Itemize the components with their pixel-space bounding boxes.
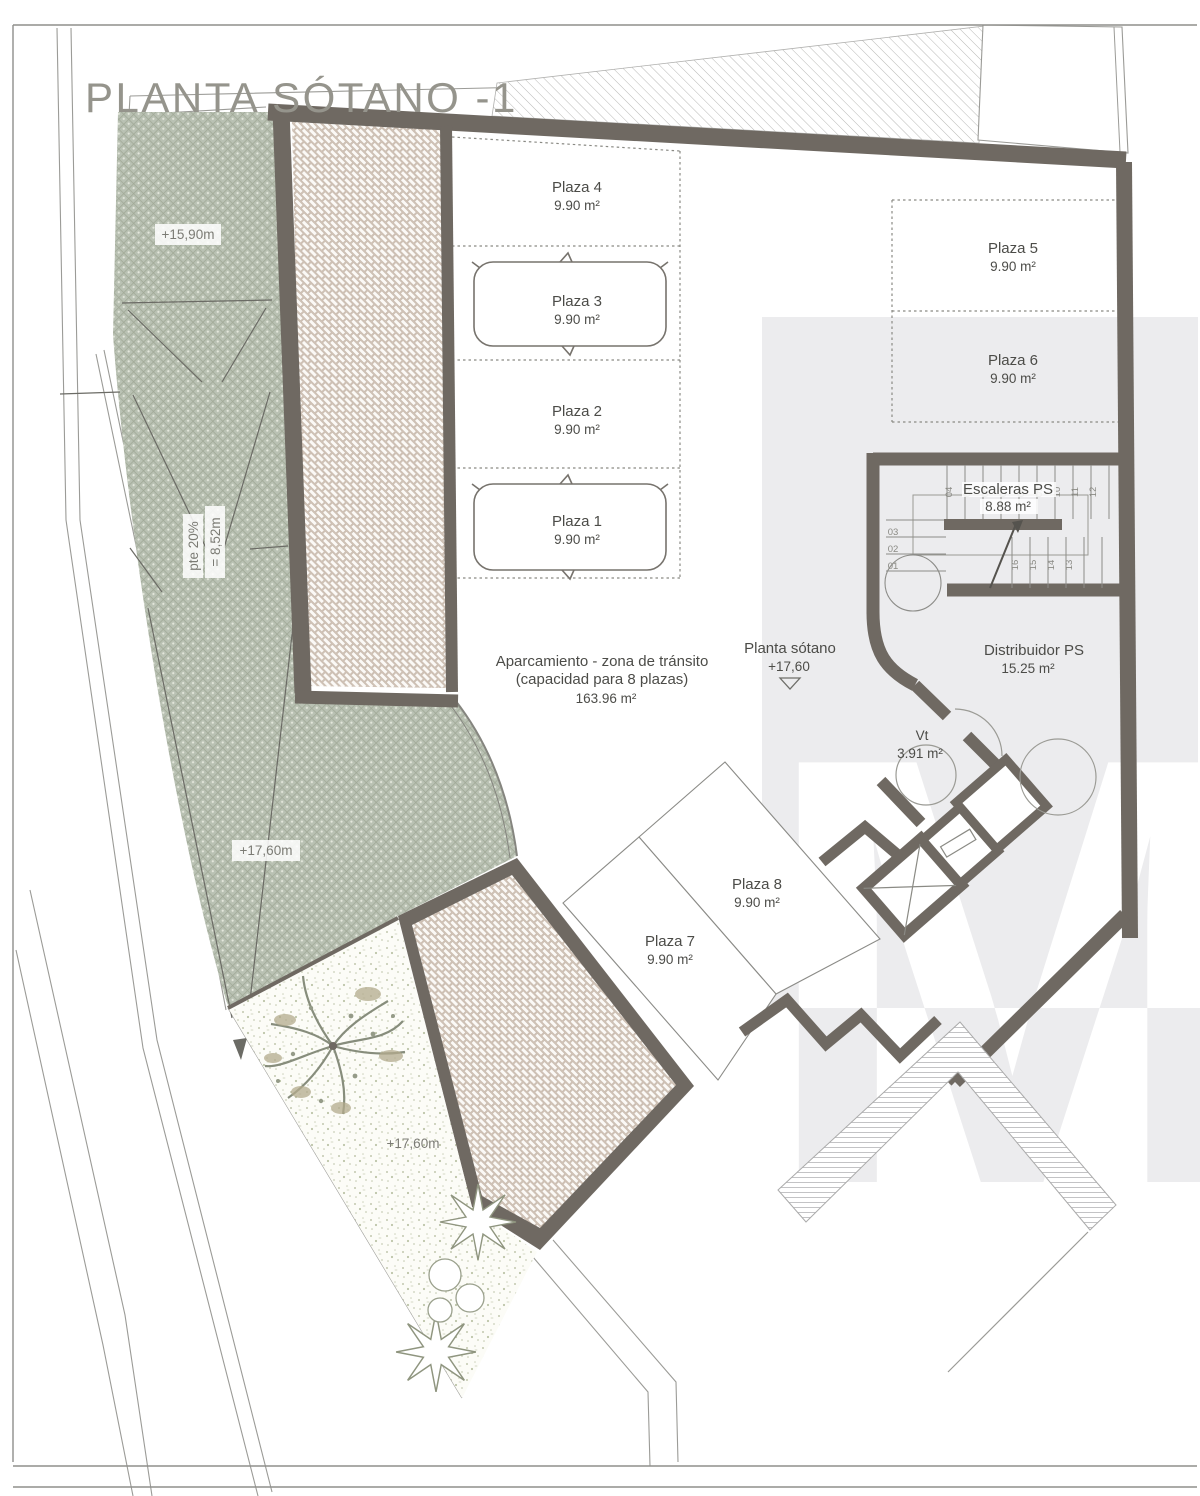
plaza1-area: 9.90 m²	[554, 532, 600, 547]
ramp-length-label: = 8,52m	[208, 517, 223, 566]
step-16: 16	[1010, 560, 1021, 571]
step-13: 13	[1064, 560, 1075, 571]
elevation-ramp-mid: +17,60m	[240, 843, 293, 858]
plaza5-name: Plaza 5	[988, 240, 1038, 257]
elevation-ramp-top: +15,90m	[162, 227, 215, 242]
step-01: 01	[888, 561, 899, 572]
level-marker-name: Planta sótano	[744, 640, 836, 657]
floor-plan-page: M M	[0, 0, 1200, 1496]
step-15: 15	[1028, 560, 1039, 571]
herringbone-paving-upper	[292, 122, 448, 688]
level-marker-elevation: +17,60	[768, 659, 810, 674]
stair-landing-wall	[944, 519, 1062, 530]
zone-line2: (capacidad para 8 plazas)	[516, 671, 689, 688]
zone-line1: Aparcamiento - zona de tránsito	[496, 653, 709, 670]
plaza4-name: Plaza 4	[552, 179, 602, 196]
plaza3-area: 9.90 m²	[554, 312, 600, 327]
plaza7-area: 9.90 m²	[647, 952, 693, 967]
vestibule-name: Vt	[916, 728, 929, 743]
floor-plan-drawing: M M	[0, 0, 1200, 1496]
plaza2-area: 9.90 m²	[554, 422, 600, 437]
plaza8-name: Plaza 8	[732, 876, 782, 893]
page-title: PLANTA SÓTANO -1	[85, 74, 518, 121]
vestibule-area: 3.91 m²	[897, 746, 943, 761]
stairs-area-label: 8.88 m²	[985, 499, 1031, 514]
step-12: 12	[1088, 487, 1099, 498]
step-11: 11	[1070, 487, 1081, 497]
plaza1-name: Plaza 1	[552, 513, 602, 530]
plaza4-area: 9.90 m²	[554, 198, 600, 213]
distribuidor-area: 15.25 m²	[1001, 661, 1055, 676]
step-04: 04	[944, 487, 955, 498]
plaza6-name: Plaza 6	[988, 352, 1038, 369]
plaza7-name: Plaza 7	[645, 933, 695, 950]
step-14: 14	[1046, 560, 1057, 571]
step-02: 02	[888, 544, 899, 555]
step-03: 03	[888, 527, 899, 538]
plaza6-area: 9.90 m²	[990, 371, 1036, 386]
plaza8-area: 9.90 m²	[734, 895, 780, 910]
plaza3-name: Plaza 3	[552, 293, 602, 310]
plaza2-name: Plaza 2	[552, 403, 602, 420]
elevation-garden: +17,60m	[387, 1136, 440, 1151]
lightwell	[978, 25, 1128, 153]
stairs-label: Escaleras PS	[963, 481, 1053, 498]
ramp-slope-label: pte 20%	[186, 521, 201, 571]
distribuidor-name: Distribuidor PS	[984, 642, 1084, 659]
plaza5-area: 9.90 m²	[990, 259, 1036, 274]
wall-right	[1124, 162, 1130, 938]
zone-area: 163.96 m²	[576, 691, 637, 706]
